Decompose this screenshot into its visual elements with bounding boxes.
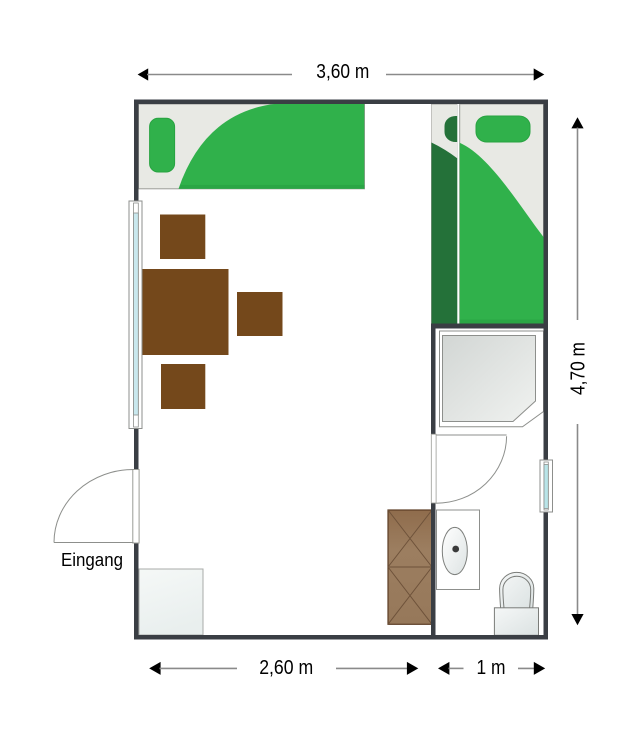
svg-text:4,70 m: 4,70 m	[567, 342, 590, 395]
svg-text:2,60 m: 2,60 m	[259, 656, 313, 679]
svg-text:3,60 m: 3,60 m	[316, 60, 369, 83]
svg-text:1 m: 1 m	[477, 656, 506, 679]
svg-text:Eingang: Eingang	[61, 550, 123, 570]
